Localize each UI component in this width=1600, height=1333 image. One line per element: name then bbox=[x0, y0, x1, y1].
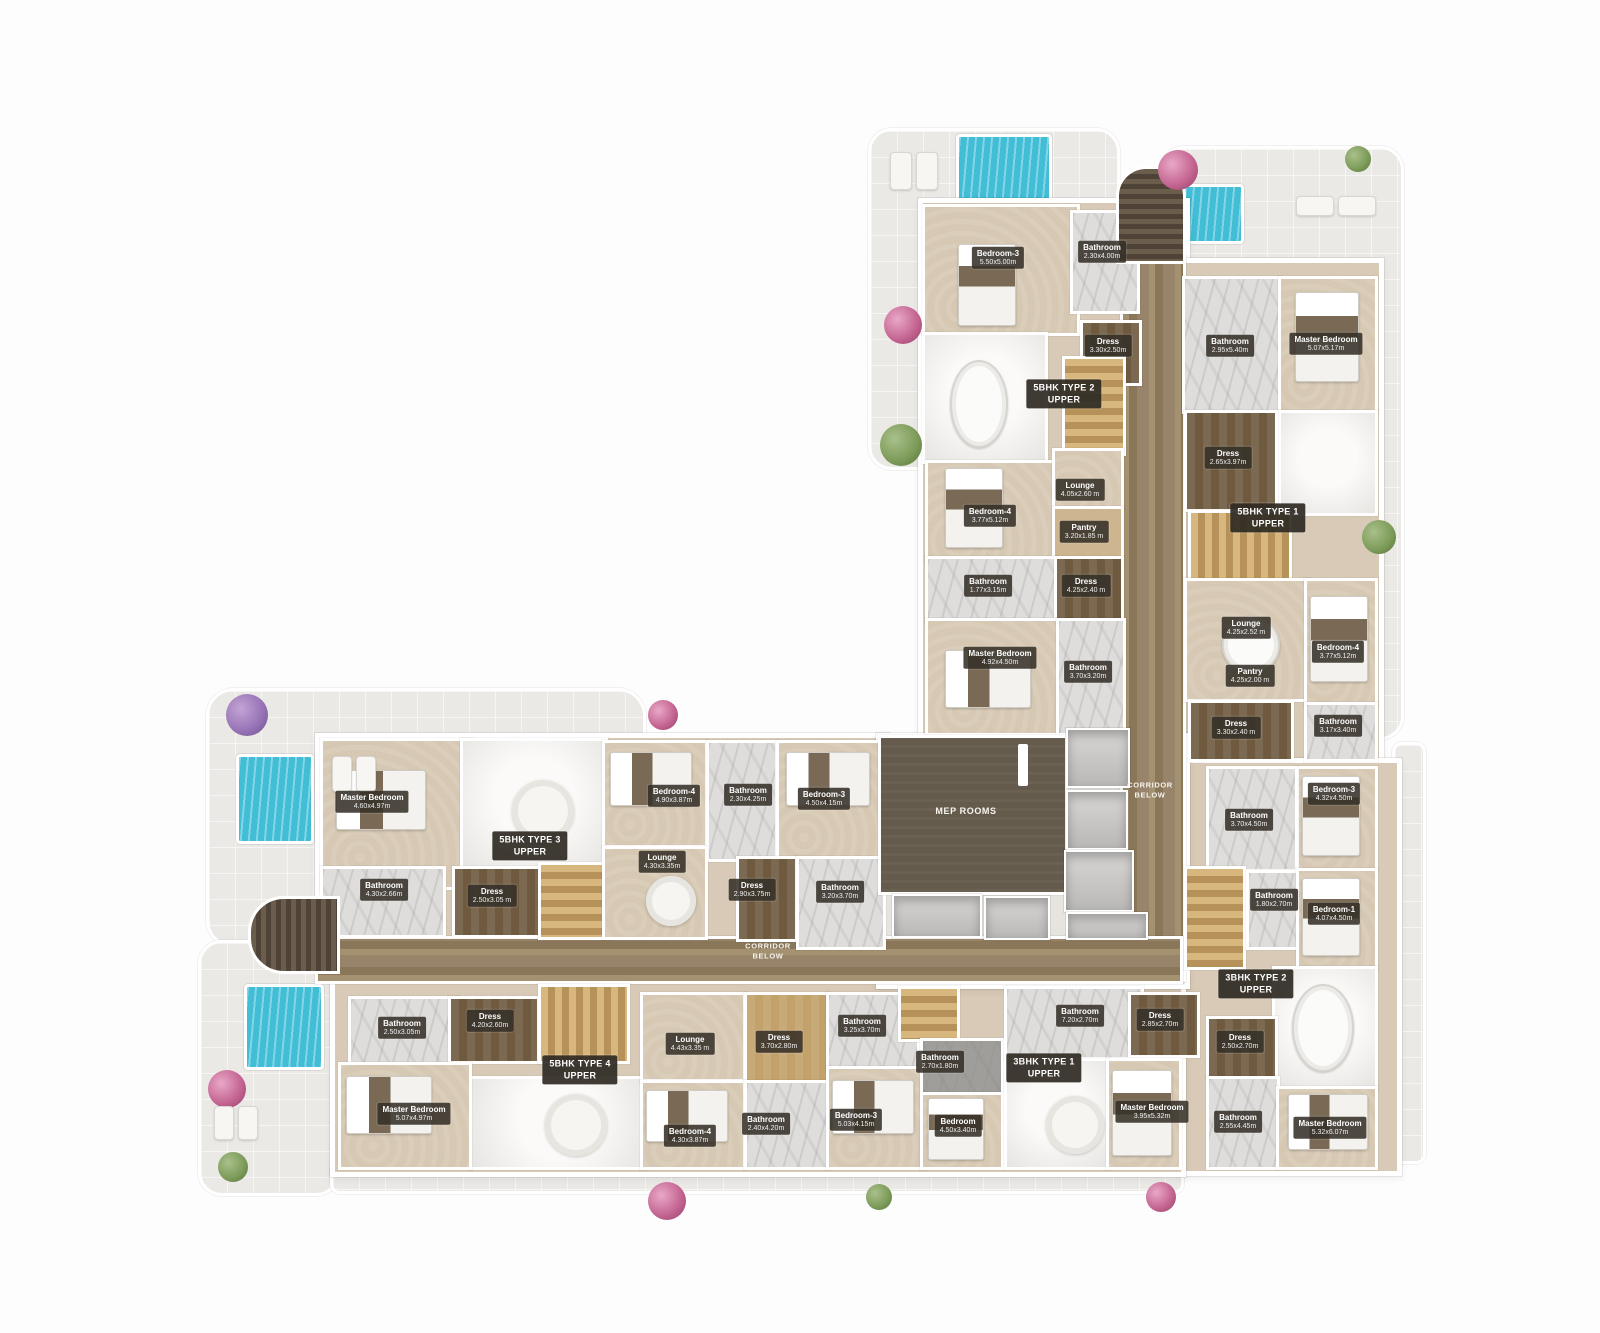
room-label-bathroom2-t4: Bathroom2.40x4.20m bbox=[742, 1113, 790, 1135]
room-name: Bedroom-4 bbox=[1317, 643, 1359, 653]
sun-lounger-icon bbox=[916, 152, 938, 190]
room-dims: 2.50x3.05m bbox=[383, 1029, 421, 1037]
room-label-bathroom2-t1: Bathroom3.17x3.40m bbox=[1314, 715, 1362, 737]
room-label-master-t3: Master Bedroom4.60x4.97m bbox=[335, 791, 408, 813]
corridor-label-line1: CORRIDOR bbox=[745, 941, 791, 951]
room-name: Dress bbox=[1142, 1011, 1179, 1021]
room-name: Bathroom bbox=[1255, 891, 1293, 901]
room-dims: 5.32x6.07m bbox=[1298, 1129, 1361, 1137]
room-label-pantry-t2: Pantry3.20x1.85 m bbox=[1060, 521, 1109, 543]
room-label-master-b2: Master Bedroom5.32x6.07m bbox=[1293, 1117, 1366, 1139]
room-label-bedroom3-right: Bedroom-34.32x4.50m bbox=[1308, 783, 1360, 805]
room-label-dress2-t4: Dress3.70x2.80m bbox=[756, 1031, 803, 1053]
plant-icon bbox=[880, 424, 922, 466]
room-name: Pantry bbox=[1231, 667, 1270, 677]
sun-lounger-icon bbox=[1296, 196, 1334, 216]
room-dims: 5.03x4.15m bbox=[835, 1121, 877, 1129]
room-name: Dress bbox=[1222, 1033, 1259, 1043]
room-label-bedroom3-b1: Bedroom-35.03x4.15m bbox=[830, 1109, 882, 1131]
room-label-master-b1: Master Bedroom3.95x5.32m bbox=[1115, 1101, 1188, 1123]
sun-lounger-icon bbox=[214, 1106, 234, 1140]
plant-icon bbox=[1158, 150, 1198, 190]
room-dims: 4.25x2.40 m bbox=[1067, 587, 1106, 595]
swimming-pool-bottom-left bbox=[244, 984, 324, 1070]
room-name: Bathroom bbox=[383, 1019, 421, 1029]
room-dims: 4.25x2.00 m bbox=[1231, 677, 1270, 685]
corridor-below-label-h: CORRIDOR BELOW bbox=[745, 941, 791, 961]
room-label-dress-b2: Dress2.50x2.70m bbox=[1217, 1031, 1264, 1053]
unit-name: 5BHK TYPE 1 bbox=[1237, 506, 1298, 518]
room-name: Master Bedroom bbox=[1294, 335, 1357, 345]
swimming-pool-top-right bbox=[1182, 184, 1244, 244]
room-dims: 2.95x5.40m bbox=[1211, 347, 1249, 355]
room-name: Bathroom bbox=[729, 786, 767, 796]
room-bathroom3-t3 bbox=[796, 856, 886, 950]
room-label-bathroom2-right: Bathroom1.80x2.70m bbox=[1250, 889, 1298, 911]
room-dims: 4.05x2.60 m bbox=[1061, 491, 1100, 499]
room-label-bedroom4-t4: Bedroom-44.30x3.87m bbox=[664, 1125, 716, 1147]
mep-rooms-label: MEP ROOMS bbox=[935, 806, 996, 818]
corridor-below-label-v: CORRIDOR BELOW bbox=[1127, 780, 1173, 800]
room-dims: 4.92x4.50m bbox=[968, 659, 1031, 667]
room-name: Master Bedroom bbox=[382, 1105, 445, 1115]
room-label-bathroom1-right: Bathroom3.70x4.50m bbox=[1225, 809, 1273, 831]
round-sofa-icon bbox=[646, 876, 696, 926]
room-label-bathroom1-b1: Bathroom3.25x3.70m bbox=[838, 1015, 886, 1037]
room-name: Bathroom bbox=[747, 1115, 785, 1125]
room-label-bedroom4-t2: Bedroom-43.77x5.12m bbox=[964, 505, 1016, 527]
unit-sub: UPPER bbox=[1225, 984, 1286, 996]
room-name: Dress bbox=[1217, 719, 1256, 729]
room-label-lounge-t2: Lounge4.05x2.60 m bbox=[1056, 479, 1105, 501]
room-label-bedroom4-t3: Bedroom-44.90x3.87m bbox=[648, 785, 700, 807]
room-label-bathroom-b2: Bathroom2.55x4.45m bbox=[1214, 1111, 1262, 1133]
room-name: Lounge bbox=[644, 853, 681, 863]
room-dims: 3.77x5.12m bbox=[1317, 653, 1359, 661]
unit-sub: UPPER bbox=[1013, 1068, 1074, 1080]
unit-label-3bhk-type2: 3BHK TYPE 2UPPER bbox=[1218, 969, 1293, 998]
room-dims: 4.30x2.66m bbox=[365, 891, 403, 899]
room-label-bathroom1-t2: Bathroom2.30x4.00m bbox=[1078, 241, 1126, 263]
room-dims: 4.32x4.50m bbox=[1313, 795, 1355, 803]
room-dims: 3.95x5.32m bbox=[1120, 1113, 1183, 1121]
room-label-dress1-t1: Dress2.65x3.97m bbox=[1205, 447, 1252, 469]
room-label-bathroom1-t3: Bathroom4.30x2.66m bbox=[360, 879, 408, 901]
room-name: Bedroom-3 bbox=[803, 790, 845, 800]
service-shaft-2 bbox=[1066, 790, 1128, 850]
swimming-pool-left bbox=[236, 754, 314, 844]
room-label-bathroom2-t2: Bathroom1.77x3.15m bbox=[964, 575, 1012, 597]
room-name: Bathroom bbox=[365, 881, 403, 891]
room-label-pantry-t1: Pantry4.25x2.00 m bbox=[1226, 665, 1275, 687]
room-name: Dress bbox=[473, 887, 512, 897]
room-label-dress-b1: Dress2.85x2.70m bbox=[1137, 1009, 1184, 1031]
room-label-bedroom-b1: Bedroom4.50x3.40m bbox=[935, 1115, 982, 1137]
room-name: Pantry bbox=[1065, 523, 1104, 533]
room-name: Dress bbox=[1090, 337, 1127, 347]
room-dims: 3.70x4.50m bbox=[1230, 821, 1268, 829]
plant-icon bbox=[648, 700, 678, 730]
room-label-bathroom1-t4: Bathroom2.50x3.05m bbox=[378, 1017, 426, 1039]
room-dims: 7.20x2.70m bbox=[1061, 1017, 1099, 1025]
room-name: Bedroom-4 bbox=[653, 787, 695, 797]
room-dims: 2.65x3.97m bbox=[1210, 459, 1247, 467]
room-label-dress1-t4: Dress4.20x2.60m bbox=[467, 1010, 514, 1032]
room-dims: 2.30x4.25m bbox=[729, 796, 767, 804]
plant-icon bbox=[866, 1184, 892, 1210]
room-name: Lounge bbox=[671, 1035, 710, 1045]
room-dims: 2.40x4.20m bbox=[747, 1125, 785, 1133]
room-dims: 3.30x2.40 m bbox=[1217, 729, 1256, 737]
sun-lounger-icon bbox=[356, 756, 376, 792]
room-dims: 2.30x4.00m bbox=[1083, 253, 1121, 261]
plant-icon bbox=[208, 1070, 246, 1108]
room-dims: 4.20x2.60m bbox=[472, 1022, 509, 1030]
room-dims: 3.70x3.20m bbox=[1069, 673, 1107, 681]
room-label-master-t4: Master Bedroom5.07x4.97m bbox=[377, 1103, 450, 1125]
room-name: Bedroom bbox=[940, 1117, 977, 1127]
room-dims: 1.77x3.15m bbox=[969, 587, 1007, 595]
room-name: Master Bedroom bbox=[340, 793, 403, 803]
room-dims: 3.20x1.85 m bbox=[1065, 533, 1104, 541]
room-dims: 4.43x3.35 m bbox=[671, 1045, 710, 1053]
unit-sub: UPPER bbox=[499, 846, 560, 858]
room-dims: 2.90x3.75m bbox=[734, 891, 771, 899]
room-name: Bathroom bbox=[1219, 1113, 1257, 1123]
room-name: Bathroom bbox=[969, 577, 1007, 587]
room-name: Dress bbox=[761, 1033, 798, 1043]
room-name: Dress bbox=[1210, 449, 1247, 459]
plant-icon bbox=[884, 306, 922, 344]
unit-name: 5BHK TYPE 3 bbox=[499, 834, 560, 846]
room-name: Bathroom bbox=[1061, 1007, 1099, 1017]
room-dims: 3.70x2.80m bbox=[761, 1043, 798, 1051]
mep-niche bbox=[1018, 744, 1028, 786]
room-name: Bathroom bbox=[1069, 663, 1107, 673]
room-dims: 3.17x3.40m bbox=[1319, 727, 1357, 735]
room-label-lounge-t1: Lounge4.25x2.52 m bbox=[1222, 617, 1271, 639]
room-dims: 5.50x5.00m bbox=[977, 259, 1019, 267]
room-dims: 2.55x4.45m bbox=[1219, 1123, 1257, 1131]
bed-icon bbox=[1310, 596, 1368, 682]
corridor-label-line2: BELOW bbox=[745, 951, 791, 961]
service-shaft-3 bbox=[1064, 850, 1134, 912]
room-dims: 5.07x5.17m bbox=[1294, 345, 1357, 353]
room-label-dress2-t2: Dress4.25x2.40 m bbox=[1062, 575, 1111, 597]
room-label-dress1-t2: Dress3.30x2.50m bbox=[1085, 335, 1132, 357]
room-dims: 2.85x2.70m bbox=[1142, 1021, 1179, 1029]
room-dims: 3.20x3.70m bbox=[821, 893, 859, 901]
stairs-b1 bbox=[898, 986, 960, 1042]
room-dims: 5.07x4.97m bbox=[382, 1115, 445, 1123]
floor-plan-canvas: MEP ROOMS CORRIDOR BELOW CORRIDOR BELOW … bbox=[0, 0, 1600, 1333]
unit-label-5bhk-type2: 5BHK TYPE 2UPPER bbox=[1026, 379, 1101, 408]
room-dims: 4.50x3.40m bbox=[940, 1127, 977, 1135]
room-dims: 3.77x5.12m bbox=[969, 517, 1011, 525]
plant-icon bbox=[648, 1182, 686, 1220]
room-name: Bedroom-1 bbox=[1313, 905, 1355, 915]
room-dims: 4.25x2.52 m bbox=[1227, 629, 1266, 637]
service-shaft-6 bbox=[984, 896, 1050, 940]
room-dims: 1.80x2.70m bbox=[1255, 901, 1293, 909]
room-dims: 4.30x3.87m bbox=[669, 1137, 711, 1145]
room-label-dress2-t1: Dress3.30x2.40 m bbox=[1212, 717, 1261, 739]
plant-icon bbox=[1146, 1182, 1176, 1212]
room-dims: 4.60x4.97m bbox=[340, 803, 403, 811]
room-name: Dress bbox=[734, 881, 771, 891]
room-label-lounge-t3: Lounge4.30x3.35m bbox=[639, 851, 686, 873]
round-sofa-icon bbox=[545, 1094, 607, 1156]
room-dims: 4.30x3.35m bbox=[644, 863, 681, 871]
room-label-master-t2: Master Bedroom4.92x4.50m bbox=[963, 647, 1036, 669]
room-dims: 3.25x3.70m bbox=[843, 1027, 881, 1035]
room-label-bedroom4-t1: Bedroom-43.77x5.12m bbox=[1312, 641, 1364, 663]
stairs-right bbox=[1184, 866, 1246, 970]
room-label-bathroom3-t3: Bathroom3.20x3.70m bbox=[816, 881, 864, 903]
unit-name: 3BHK TYPE 1 bbox=[1013, 1056, 1074, 1068]
unit-label-3bhk-type1: 3BHK TYPE 1UPPER bbox=[1006, 1053, 1081, 1082]
room-label-bathroom3-b1: Bathroom7.20x2.70m bbox=[1056, 1005, 1104, 1027]
unit-sub: UPPER bbox=[1237, 518, 1298, 530]
plant-icon bbox=[1345, 146, 1371, 172]
stairwell-left-icon bbox=[248, 896, 340, 974]
unit-sub: UPPER bbox=[1033, 394, 1094, 406]
room-name: Lounge bbox=[1061, 481, 1100, 491]
unit-label-5bhk-type4: 5BHK TYPE 4UPPER bbox=[542, 1055, 617, 1084]
room-name: Bedroom-3 bbox=[1313, 785, 1355, 795]
room-dims: 4.50x4.15m bbox=[803, 800, 845, 808]
unit-label-5bhk-type1: 5BHK TYPE 1UPPER bbox=[1230, 503, 1305, 532]
service-shaft-1 bbox=[1066, 728, 1130, 788]
corridor-label-line2: BELOW bbox=[1127, 790, 1173, 800]
room-label-bedroom3-t2: Bedroom-35.50x5.00m bbox=[972, 247, 1024, 269]
room-label-bathroom2-t3: Bathroom2.30x4.25m bbox=[724, 784, 772, 806]
room-label-bathroom3-t2: Bathroom3.70x3.20m bbox=[1064, 661, 1112, 683]
room-dims: 2.50x2.70m bbox=[1222, 1043, 1259, 1051]
corridor-label-line1: CORRIDOR bbox=[1127, 780, 1173, 790]
sun-lounger-icon bbox=[238, 1106, 258, 1140]
room-label-lounge-t4: Lounge4.43x3.35 m bbox=[666, 1033, 715, 1055]
service-shaft-5 bbox=[892, 894, 982, 938]
room-name: Bedroom-3 bbox=[977, 249, 1019, 259]
room-name: Dress bbox=[472, 1012, 509, 1022]
unit-name: 3BHK TYPE 2 bbox=[1225, 972, 1286, 984]
room-dims: 2.70x1.80m bbox=[921, 1063, 959, 1071]
room-dims: 4.90x3.87m bbox=[653, 797, 695, 805]
swimming-pool-top bbox=[956, 134, 1052, 206]
room-name: Bathroom bbox=[1230, 811, 1268, 821]
room-name: Bedroom-4 bbox=[969, 507, 1011, 517]
room-name: Bathroom bbox=[921, 1053, 959, 1063]
room-dims: 2.50x3.05 m bbox=[473, 897, 512, 905]
unit-label-5bhk-type3: 5BHK TYPE 3UPPER bbox=[492, 831, 567, 860]
stairs-t4 bbox=[538, 984, 630, 1064]
room-label-bedroom3-t3: Bedroom-34.50x4.15m bbox=[798, 788, 850, 810]
unit-name: 5BHK TYPE 2 bbox=[1033, 382, 1094, 394]
room-name: Master Bedroom bbox=[968, 649, 1031, 659]
sun-lounger-icon bbox=[890, 152, 912, 190]
room-dims: 4.07x4.50m bbox=[1313, 915, 1355, 923]
sun-lounger-icon bbox=[1338, 196, 1376, 216]
sun-lounger-icon bbox=[332, 756, 352, 792]
room-name: Master Bedroom bbox=[1298, 1119, 1361, 1129]
room-name: Bathroom bbox=[1211, 337, 1249, 347]
room-name: Bathroom bbox=[843, 1017, 881, 1027]
unit-name: 5BHK TYPE 4 bbox=[549, 1058, 610, 1070]
room-name: Bathroom bbox=[1083, 243, 1121, 253]
room-label-bathroom1-t1: Bathroom2.95x5.40m bbox=[1206, 335, 1254, 357]
bathtub-icon bbox=[1292, 984, 1354, 1072]
round-sofa-icon bbox=[1046, 1096, 1104, 1154]
room-name: Dress bbox=[1067, 577, 1106, 587]
unit-sub: UPPER bbox=[549, 1070, 610, 1082]
room-label-bedroom1-right: Bedroom-14.07x4.50m bbox=[1308, 903, 1360, 925]
room-name: Bedroom-4 bbox=[669, 1127, 711, 1137]
service-shaft-4 bbox=[1066, 912, 1148, 940]
room-name: Bedroom-3 bbox=[835, 1111, 877, 1121]
room-dims: 3.30x2.50m bbox=[1090, 347, 1127, 355]
plant-icon bbox=[226, 694, 268, 736]
room-label-bathroom2-b1: Bathroom2.70x1.80m bbox=[916, 1051, 964, 1073]
plant-icon bbox=[218, 1152, 248, 1182]
room-label-dress1-t3: Dress2.50x3.05 m bbox=[468, 885, 517, 907]
room-name: Bathroom bbox=[821, 883, 859, 893]
room-name: Bathroom bbox=[1319, 717, 1357, 727]
room-label-dress2-t3: Dress2.90x3.75m bbox=[729, 879, 776, 901]
plant-icon bbox=[1362, 520, 1396, 554]
room-master-suite-t1 bbox=[1278, 410, 1378, 516]
room-name: Master Bedroom bbox=[1120, 1103, 1183, 1113]
bathtub-icon bbox=[950, 360, 1008, 448]
room-label-master-t1: Master Bedroom5.07x5.17m bbox=[1289, 333, 1362, 355]
room-name: Lounge bbox=[1227, 619, 1266, 629]
